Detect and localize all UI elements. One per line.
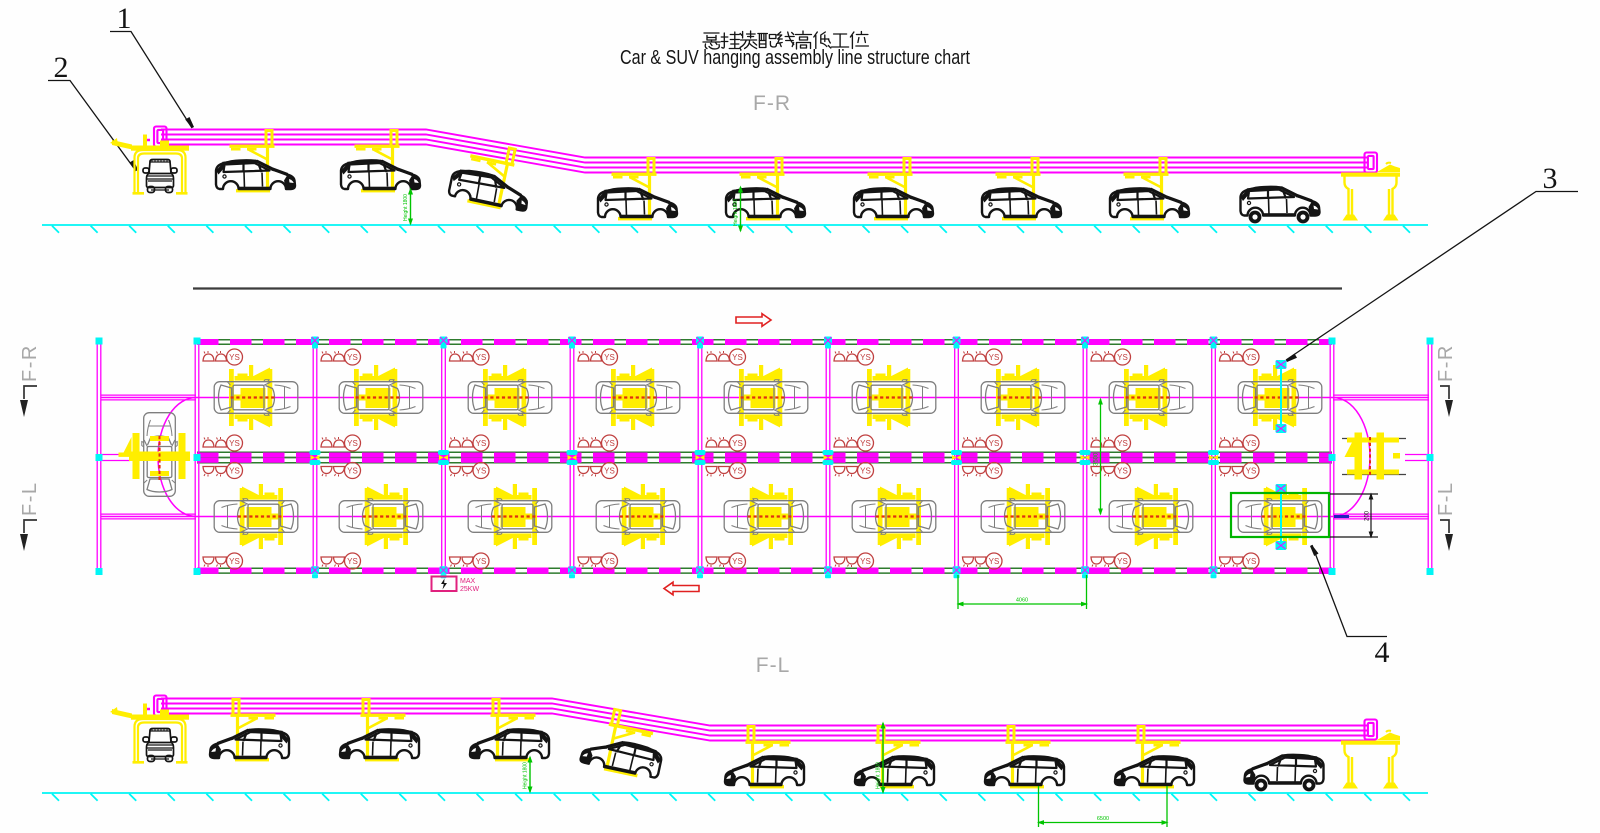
svg-text:F-R: F-R <box>1435 344 1457 382</box>
svg-text:Height 1800: Height 1800 <box>523 762 529 789</box>
svg-text:2: 2 <box>54 51 69 84</box>
svg-text:F-L: F-L <box>19 482 41 517</box>
svg-text:6500: 6500 <box>1097 816 1109 822</box>
svg-text:4060: 4060 <box>1016 598 1028 604</box>
svg-text:3500: 3500 <box>1094 452 1100 466</box>
svg-text:3: 3 <box>1543 162 1558 195</box>
svg-text:F-L: F-L <box>756 654 791 677</box>
svg-text:Car & SUV hanging assembly lin: Car & SUV hanging assembly line structur… <box>620 47 970 69</box>
svg-text:MAX: MAX <box>460 578 476 585</box>
svg-text:F-R: F-R <box>19 344 41 382</box>
svg-text:200: 200 <box>1365 510 1371 521</box>
svg-text:Height 1800: Height 1800 <box>733 199 739 226</box>
svg-text:Height 1800: Height 1800 <box>876 762 882 789</box>
svg-text:1: 1 <box>117 2 132 35</box>
svg-text:Height 1800: Height 1800 <box>403 194 409 221</box>
svg-text:25KW: 25KW <box>460 586 479 593</box>
svg-text:F-R: F-R <box>753 92 791 115</box>
svg-text:F-L: F-L <box>1435 482 1457 517</box>
svg-text:4: 4 <box>1375 636 1390 669</box>
